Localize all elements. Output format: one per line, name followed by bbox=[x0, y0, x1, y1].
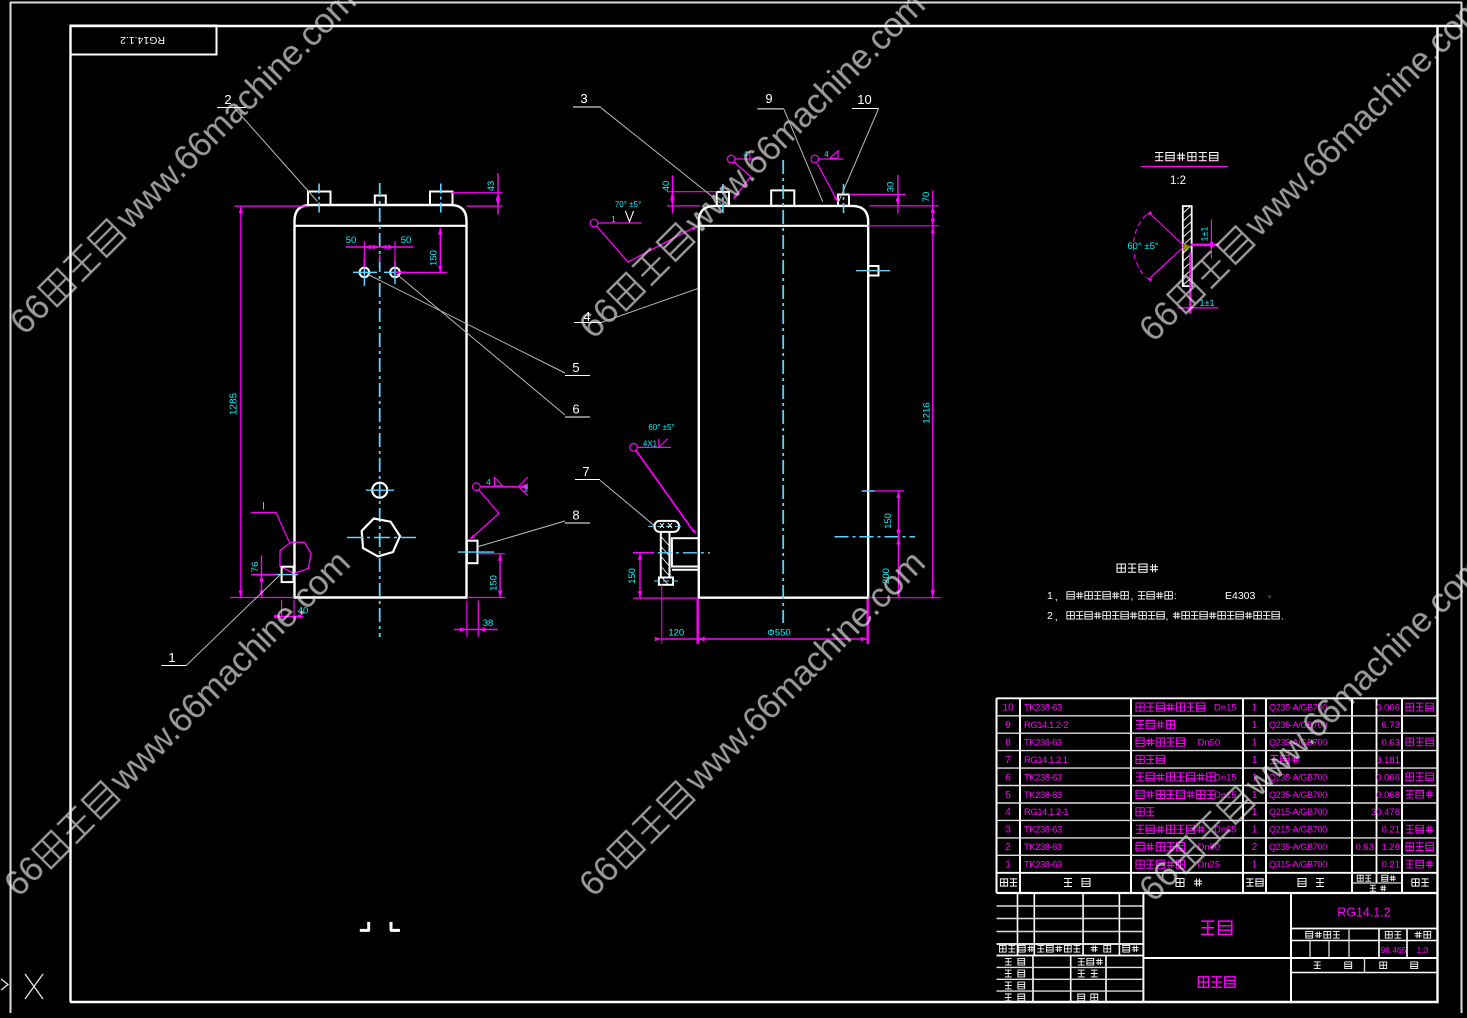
svg-text:1285: 1285 bbox=[229, 392, 240, 415]
svg-text:10: 10 bbox=[857, 92, 871, 107]
svg-text:1: 1 bbox=[1252, 703, 1258, 714]
svg-text:6.73: 6.73 bbox=[1382, 720, 1401, 731]
svg-text:8: 8 bbox=[1005, 737, 1011, 748]
svg-text:2: 2 bbox=[1047, 610, 1053, 622]
svg-text:7: 7 bbox=[1005, 755, 1011, 766]
svg-text:150: 150 bbox=[488, 575, 499, 591]
svg-text:6: 6 bbox=[572, 402, 579, 417]
svg-text:50: 50 bbox=[346, 235, 357, 246]
svg-text:‚: ‚ bbox=[1055, 591, 1057, 603]
svg-text:Φ550: Φ550 bbox=[767, 628, 790, 639]
svg-text:1: 1 bbox=[1252, 720, 1258, 731]
svg-text:TK238-63: TK238-63 bbox=[1024, 825, 1062, 836]
svg-text:30.478: 30.478 bbox=[1371, 807, 1400, 818]
svg-text:1: 1 bbox=[1252, 807, 1258, 818]
svg-text:Q215-A/GB700: Q215-A/GB700 bbox=[1269, 825, 1327, 835]
svg-text:1: 1 bbox=[524, 485, 529, 494]
svg-text:76: 76 bbox=[250, 562, 261, 573]
svg-text:RG14.1.2: RG14.1.2 bbox=[120, 34, 165, 46]
svg-text:150: 150 bbox=[883, 513, 894, 529]
svg-text::: : bbox=[1174, 591, 1177, 602]
svg-text:1:3: 1:3 bbox=[1416, 945, 1428, 955]
svg-text:TK238-63: TK238-63 bbox=[1024, 703, 1062, 714]
svg-text:1: 1 bbox=[1047, 590, 1053, 602]
svg-text:Q315-A/GB700: Q315-A/GB700 bbox=[1269, 860, 1327, 870]
svg-text:150: 150 bbox=[627, 568, 638, 584]
svg-text:TK238-63: TK238-63 bbox=[1024, 737, 1062, 748]
svg-text:0.068: 0.068 bbox=[1376, 790, 1400, 801]
svg-text:70° ±5°: 70° ±5° bbox=[615, 200, 641, 209]
svg-text:RG14.1.2: RG14.1.2 bbox=[1337, 906, 1391, 920]
svg-text:Dn15: Dn15 bbox=[1214, 703, 1237, 714]
svg-text:5: 5 bbox=[1005, 790, 1011, 801]
svg-text:7: 7 bbox=[582, 464, 589, 479]
svg-text:1: 1 bbox=[1252, 860, 1258, 871]
svg-text:1: 1 bbox=[1252, 825, 1258, 836]
svg-text:1: 1 bbox=[168, 650, 175, 665]
svg-text:10: 10 bbox=[1002, 703, 1014, 714]
svg-text:40: 40 bbox=[661, 181, 672, 192]
svg-text:2: 2 bbox=[1005, 842, 1011, 853]
svg-text:98.465: 98.465 bbox=[1381, 945, 1407, 955]
svg-text:1: 1 bbox=[1005, 860, 1011, 871]
svg-text:3: 3 bbox=[1005, 825, 1011, 836]
svg-text:9: 9 bbox=[765, 91, 772, 106]
svg-text:RG14.1.2-1: RG14.1.2-1 bbox=[1024, 807, 1068, 818]
svg-text:4: 4 bbox=[1005, 807, 1011, 818]
svg-text:3: 3 bbox=[580, 91, 587, 106]
svg-text:70: 70 bbox=[921, 192, 932, 203]
svg-text:1216: 1216 bbox=[922, 402, 933, 423]
svg-text:RG14.1.2.1: RG14.1.2.1 bbox=[1024, 755, 1068, 766]
svg-text:,: , bbox=[1131, 592, 1134, 603]
svg-text:TK238-63: TK238-63 bbox=[1024, 842, 1062, 853]
svg-text:Q235-A/GB700: Q235-A/GB700 bbox=[1269, 790, 1327, 800]
svg-text:1±1: 1±1 bbox=[1200, 298, 1215, 308]
svg-text:8: 8 bbox=[572, 508, 579, 523]
svg-text:I: I bbox=[262, 501, 265, 513]
svg-text:150: 150 bbox=[429, 250, 440, 266]
svg-text:◦: ◦ bbox=[1268, 592, 1271, 601]
svg-text:TK238-63: TK238-63 bbox=[1024, 772, 1062, 783]
svg-text:TK238-63: TK238-63 bbox=[1024, 860, 1062, 871]
svg-text:RG14.1.2-2: RG14.1.2-2 bbox=[1024, 720, 1068, 731]
svg-text:0.21: 0.21 bbox=[1382, 860, 1401, 871]
svg-text:1: 1 bbox=[611, 215, 616, 224]
svg-text:3.181: 3.181 bbox=[1376, 755, 1400, 766]
svg-text:1: 1 bbox=[1252, 737, 1258, 748]
svg-text:,: , bbox=[1166, 612, 1169, 623]
svg-text:5: 5 bbox=[572, 360, 579, 375]
svg-text:2: 2 bbox=[1252, 842, 1258, 853]
svg-text:Q215-A/GB700: Q215-A/GB700 bbox=[1269, 807, 1327, 817]
svg-text:0.63: 0.63 bbox=[1356, 842, 1375, 853]
svg-text:60° ±5°: 60° ±5° bbox=[648, 423, 674, 432]
svg-text:0.63: 0.63 bbox=[1382, 737, 1401, 748]
svg-text:Dn50: Dn50 bbox=[1198, 737, 1221, 748]
svg-text:0.21: 0.21 bbox=[1382, 825, 1401, 836]
svg-text:4: 4 bbox=[824, 150, 829, 159]
svg-text:30: 30 bbox=[885, 182, 896, 193]
svg-text:1±1: 1±1 bbox=[1200, 227, 1210, 242]
svg-text:6: 6 bbox=[1005, 772, 1011, 783]
svg-text:‚: ‚ bbox=[1055, 611, 1057, 623]
svg-text:Dn25: Dn25 bbox=[1198, 860, 1221, 871]
svg-text:4: 4 bbox=[486, 478, 491, 487]
svg-text:50: 50 bbox=[401, 235, 412, 246]
svg-text:Dn15: Dn15 bbox=[1214, 772, 1237, 783]
svg-text:E4303: E4303 bbox=[1225, 590, 1256, 602]
svg-text:.: . bbox=[1281, 612, 1284, 623]
svg-text:1:2: 1:2 bbox=[1170, 175, 1186, 187]
svg-text:38: 38 bbox=[483, 618, 494, 629]
svg-text:0.066: 0.066 bbox=[1376, 703, 1400, 714]
svg-text:TK238-63: TK238-63 bbox=[1024, 790, 1062, 801]
svg-text:Q235-A/GB700: Q235-A/GB700 bbox=[1269, 842, 1327, 852]
svg-text:1.26: 1.26 bbox=[1382, 842, 1401, 853]
svg-text:9: 9 bbox=[1005, 720, 1011, 731]
svg-text:43: 43 bbox=[486, 181, 497, 192]
svg-text:120: 120 bbox=[668, 628, 684, 639]
svg-text:60° ±5°: 60° ±5° bbox=[1127, 241, 1159, 252]
svg-text:0.066: 0.066 bbox=[1376, 772, 1400, 783]
